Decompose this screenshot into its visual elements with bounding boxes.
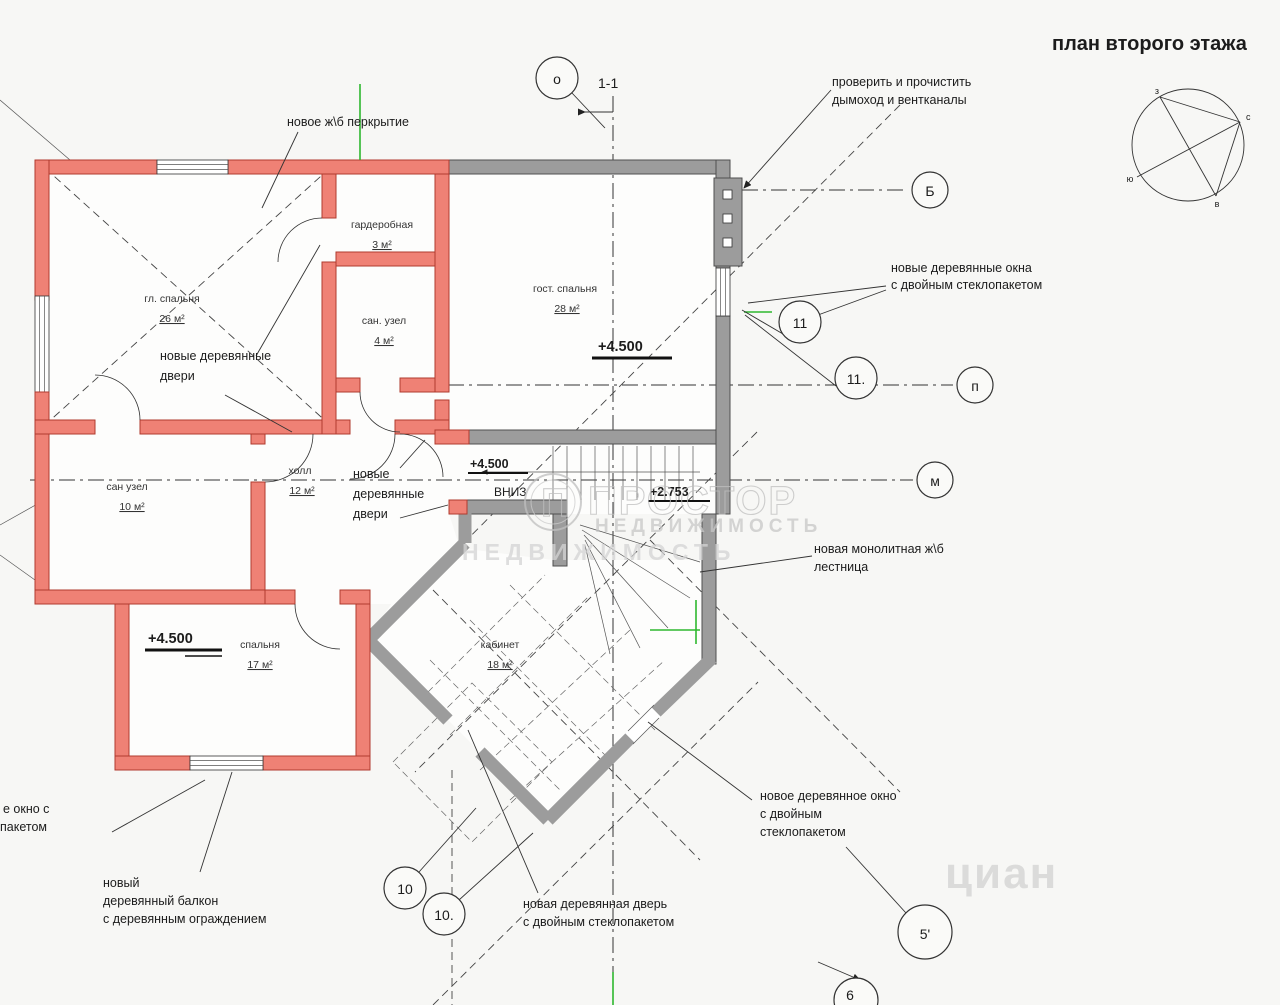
bubble-11-label: 11 bbox=[793, 315, 808, 331]
room-office-area: 18 м² bbox=[487, 659, 513, 671]
annotation-stairs-1: новая монолитная ж\б bbox=[814, 542, 944, 556]
room-office-name: кабинет bbox=[481, 639, 520, 651]
bubble-10-label: 10 bbox=[397, 881, 413, 897]
compass-east-label: в bbox=[1215, 199, 1220, 209]
compass-south-label: ю bbox=[1127, 174, 1134, 184]
bubble-11d-label: 11. bbox=[847, 371, 865, 387]
annotation-doors-left-1: новые деревянные bbox=[160, 349, 271, 363]
watermark-cian: циан bbox=[945, 849, 1058, 898]
floor-plan-canvas: о Б 11 11. п м 10 10. 5' 6 з с ю в план … bbox=[0, 0, 1280, 1005]
annotation-window-cut-1: е окно с bbox=[3, 802, 49, 816]
room-hall-area: 12 м² bbox=[289, 485, 315, 497]
annotation-door-bottom-1: новая деревянная дверь bbox=[523, 897, 667, 911]
floor-plan-page: о Б 11 11. п м 10 10. 5' 6 з с ю в план … bbox=[0, 0, 1280, 1005]
room-main-bedroom-area: 26 м² bbox=[159, 313, 185, 325]
annotation-doors-center-2: деревянные bbox=[353, 487, 424, 501]
compass-rose: з с ю в bbox=[1127, 86, 1251, 209]
bubble-6 bbox=[834, 978, 878, 1005]
annotation-window-br-3: стеклопакетом bbox=[760, 825, 846, 839]
watermark-sub: НЕДВИЖИМОСТЬ bbox=[595, 516, 822, 537]
room-guest-bedroom-name: гост. спальня bbox=[533, 283, 597, 295]
room-guest-bedroom-area: 28 м² bbox=[554, 303, 580, 315]
annotation-doors-left-2: двери bbox=[160, 369, 195, 383]
annotation-chimney-1: проверить и прочистить bbox=[832, 75, 971, 89]
room-main-bedroom-name: гл. спальня bbox=[144, 293, 199, 305]
annotation-window-cut-2: пакетом bbox=[0, 820, 47, 834]
elevation-hall: +4.500 bbox=[470, 457, 509, 471]
annotation-balcony-3: с деревянным ограждением bbox=[103, 912, 266, 926]
annotation-balcony-1: новый bbox=[103, 876, 139, 890]
annotation-stairs-2: лестница bbox=[814, 560, 868, 574]
room-bathroom-small-name: сан. узел bbox=[362, 315, 406, 327]
elevation-bedroom: +4.500 bbox=[148, 631, 193, 647]
annotation-doors-center-1: новые bbox=[353, 467, 389, 481]
annotation-slab: новое ж\б перкрытие bbox=[287, 115, 409, 129]
room-bathroom-small-area: 4 м² bbox=[374, 335, 394, 347]
section-label: 1-1 bbox=[598, 75, 618, 91]
room-wardrobe-area: 3 м² bbox=[372, 239, 392, 251]
annotation-balcony-2: деревянный балкон bbox=[103, 894, 218, 908]
annotation-window-br-2: с двойным bbox=[760, 807, 822, 821]
watermark-sub2: НЕДВИЖИМОСТЬ bbox=[462, 539, 736, 565]
room-bedroom-area: 17 м² bbox=[247, 659, 273, 671]
elevation-guest: +4.500 bbox=[598, 339, 643, 355]
bubble-5-label: 5' bbox=[920, 926, 930, 942]
bubble-o-label: о bbox=[553, 71, 561, 87]
page-title: план второго этажа bbox=[1052, 33, 1248, 55]
bubble-p-label: п bbox=[971, 378, 979, 394]
room-bathroom-area: 10 м² bbox=[119, 501, 145, 513]
room-hall-name: холл bbox=[289, 465, 312, 477]
annotation-chimney-2: дымоход и вентканалы bbox=[832, 93, 967, 107]
compass-west-label: з bbox=[1155, 86, 1159, 96]
bubble-6-label: 6 bbox=[846, 987, 854, 1003]
annotation-doors-center-3: двери bbox=[353, 507, 388, 521]
annotation-window-br-1: новое деревянное окно bbox=[760, 789, 897, 803]
room-bedroom-name: спальня bbox=[240, 639, 280, 651]
bubble-10d-label: 10. bbox=[434, 907, 453, 923]
annotation-windows-right-2: с двойным стеклопакетом bbox=[891, 278, 1042, 292]
stair-down-label: ВНИЗ bbox=[494, 485, 527, 499]
room-wardrobe-name: гардеробная bbox=[351, 219, 413, 231]
annotation-door-bottom-2: с двойным стеклопакетом bbox=[523, 915, 674, 929]
room-bathroom-name: сан узел bbox=[106, 481, 147, 493]
annotation-windows-right-1: новые деревянные окна bbox=[891, 261, 1032, 275]
compass-north-label: с bbox=[1246, 112, 1251, 122]
bubble-b-label: Б bbox=[925, 183, 934, 199]
watermark-logo-letter: П bbox=[541, 481, 572, 525]
bubble-m-label: м bbox=[930, 473, 940, 489]
